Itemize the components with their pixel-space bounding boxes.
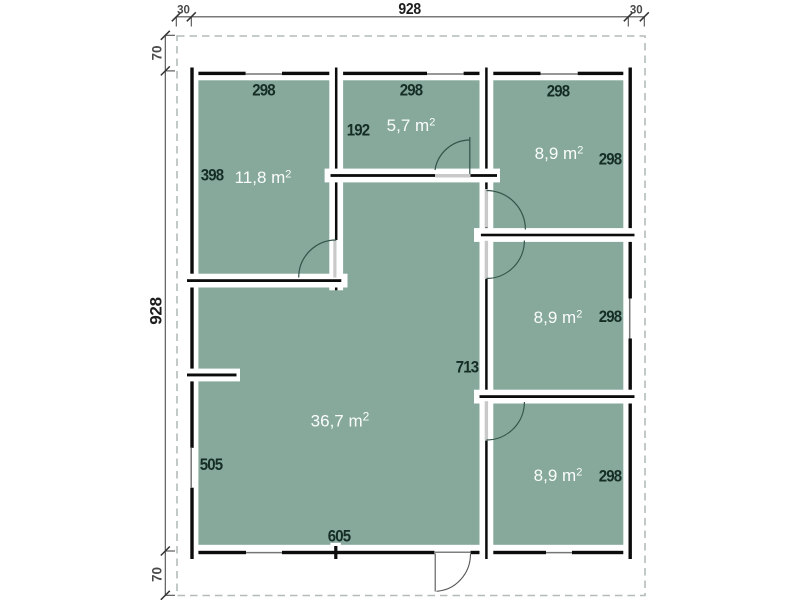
svg-text:713: 713 bbox=[456, 359, 480, 377]
svg-text:928: 928 bbox=[398, 2, 421, 19]
svg-text:70: 70 bbox=[150, 567, 165, 582]
svg-text:36,7 m2: 36,7 m2 bbox=[311, 410, 370, 431]
svg-text:298: 298 bbox=[599, 151, 623, 169]
svg-text:5,7 m2: 5,7 m2 bbox=[387, 116, 436, 135]
svg-text:298: 298 bbox=[400, 82, 424, 100]
svg-text:70: 70 bbox=[150, 45, 165, 60]
svg-text:298: 298 bbox=[252, 82, 276, 100]
svg-text:298: 298 bbox=[547, 83, 571, 101]
svg-text:30: 30 bbox=[630, 5, 643, 17]
svg-text:928: 928 bbox=[147, 297, 166, 324]
svg-text:298: 298 bbox=[599, 308, 623, 326]
svg-text:192: 192 bbox=[347, 122, 371, 140]
svg-text:8,9 m2: 8,9 m2 bbox=[534, 466, 583, 485]
svg-text:8,9 m2: 8,9 m2 bbox=[534, 308, 583, 327]
svg-text:30: 30 bbox=[177, 5, 190, 17]
svg-text:298: 298 bbox=[599, 468, 623, 486]
svg-text:398: 398 bbox=[201, 167, 225, 185]
svg-text:11,8 m2: 11,8 m2 bbox=[235, 168, 292, 187]
svg-text:605: 605 bbox=[328, 528, 352, 546]
svg-text:505: 505 bbox=[200, 456, 224, 474]
svg-text:8,9 m2: 8,9 m2 bbox=[535, 144, 584, 163]
